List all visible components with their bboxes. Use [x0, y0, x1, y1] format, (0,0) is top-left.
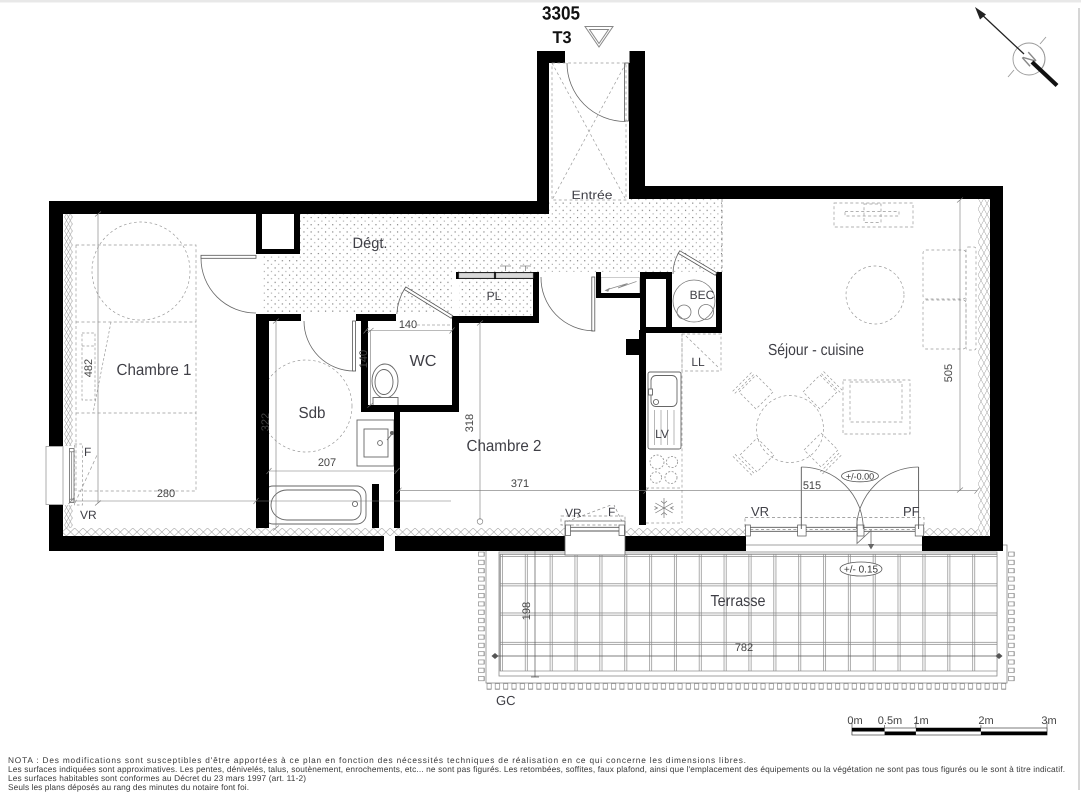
svg-text:322: 322: [260, 413, 272, 431]
svg-text:VR: VR: [751, 504, 769, 519]
svg-text:Seuls les plans déposés au ran: Seuls les plans déposés au rang des minu…: [8, 782, 249, 792]
svg-text:140: 140: [399, 319, 417, 331]
svg-text:+/-0.00: +/-0.00: [846, 471, 874, 481]
svg-text:T3: T3: [553, 28, 572, 47]
svg-text:198: 198: [521, 602, 533, 620]
svg-text:Chambre 2: Chambre 2: [467, 438, 542, 455]
svg-text:0.5m: 0.5m: [878, 715, 902, 727]
svg-text:Entrée: Entrée: [572, 188, 613, 202]
svg-text:3m: 3m: [1041, 715, 1056, 727]
svg-text:WC: WC: [410, 353, 437, 370]
svg-text:Séjour - cuisine: Séjour - cuisine: [768, 342, 864, 359]
svg-text:F: F: [84, 445, 91, 459]
svg-text:Sdb: Sdb: [299, 405, 326, 422]
svg-text:PF: PF: [903, 504, 920, 519]
svg-text:F: F: [608, 505, 615, 519]
svg-text:371: 371: [511, 478, 529, 490]
svg-text:318: 318: [464, 414, 476, 432]
svg-text:+/- 0.15: +/- 0.15: [844, 565, 879, 576]
svg-text:Terrasse: Terrasse: [711, 593, 766, 610]
svg-text:140: 140: [358, 350, 370, 368]
svg-text:280: 280: [157, 488, 175, 500]
svg-text:LL: LL: [691, 355, 705, 369]
svg-text:207: 207: [318, 457, 336, 469]
svg-text:BEC: BEC: [690, 288, 715, 302]
svg-text:VR: VR: [80, 508, 97, 522]
svg-text:505: 505: [943, 364, 955, 382]
svg-text:PL: PL: [487, 289, 502, 303]
svg-text:515: 515: [803, 480, 821, 492]
svg-text:782: 782: [735, 642, 753, 654]
svg-text:Chambre 1: Chambre 1: [117, 362, 192, 379]
svg-text:0m: 0m: [847, 715, 862, 727]
svg-text:VR: VR: [565, 506, 582, 520]
svg-text:3305: 3305: [542, 4, 580, 25]
svg-text:GC: GC: [496, 693, 516, 708]
svg-text:482: 482: [83, 359, 95, 377]
svg-text:Dégt.: Dégt.: [353, 235, 388, 252]
svg-text:LV: LV: [655, 427, 669, 441]
